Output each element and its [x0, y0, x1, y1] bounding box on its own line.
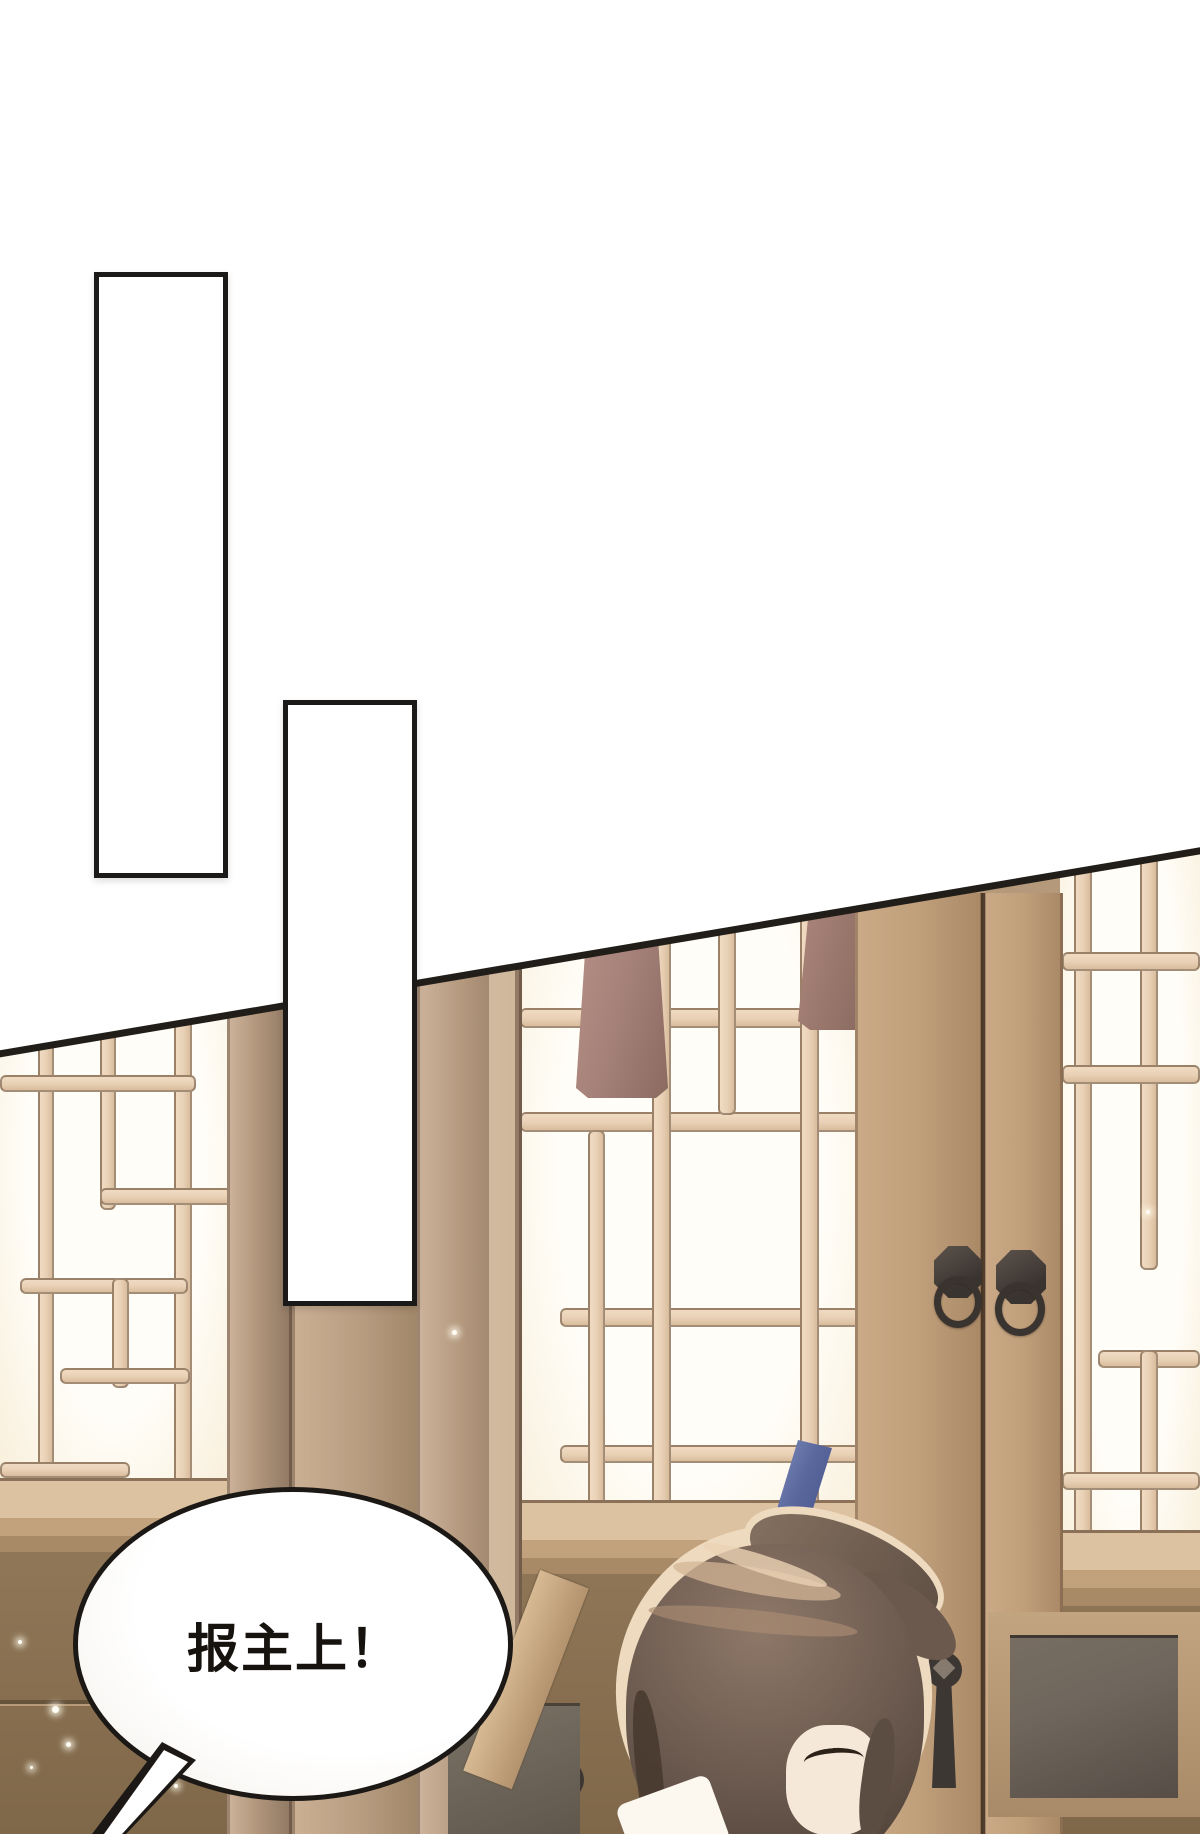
lattice-bar: [718, 905, 736, 1115]
light-sparkle-icon: [52, 1706, 59, 1713]
door-knocker-left-ring: [934, 1276, 982, 1328]
lattice-bar: [588, 1130, 605, 1545]
lattice-bar: [1140, 850, 1158, 1270]
window-sill-right: [1060, 1530, 1200, 1606]
lamp-shade-left: [576, 938, 668, 1098]
lattice-bar: [1062, 1065, 1200, 1084]
speech-bubble-text: 报主上！: [73, 1487, 513, 1801]
light-sparkle-icon: [18, 1640, 22, 1644]
lattice-bar: [0, 1075, 196, 1092]
recessed-panel-inner: [1010, 1635, 1178, 1798]
comic-page: 报主上！: [0, 0, 1200, 1834]
lattice-bar: [38, 940, 54, 1490]
empty-panel-2: [283, 700, 417, 1306]
lattice-bar: [20, 1278, 188, 1294]
lattice-bar: [1140, 1350, 1158, 1535]
light-sparkle-icon: [1146, 1210, 1150, 1214]
lattice-bar: [60, 1368, 190, 1384]
light-sparkle-icon: [66, 1742, 71, 1747]
light-sparkle-icon: [30, 1766, 33, 1769]
lattice-bar: [1062, 952, 1200, 971]
empty-panel-1: [94, 272, 228, 878]
door-knocker-right-ring: [995, 1282, 1045, 1336]
lattice-bar: [1062, 1472, 1200, 1490]
door-gap-line: [981, 893, 985, 1834]
light-sparkle-icon: [452, 1330, 457, 1335]
lattice-bar: [0, 1462, 130, 1478]
lattice-bar: [100, 1188, 232, 1205]
